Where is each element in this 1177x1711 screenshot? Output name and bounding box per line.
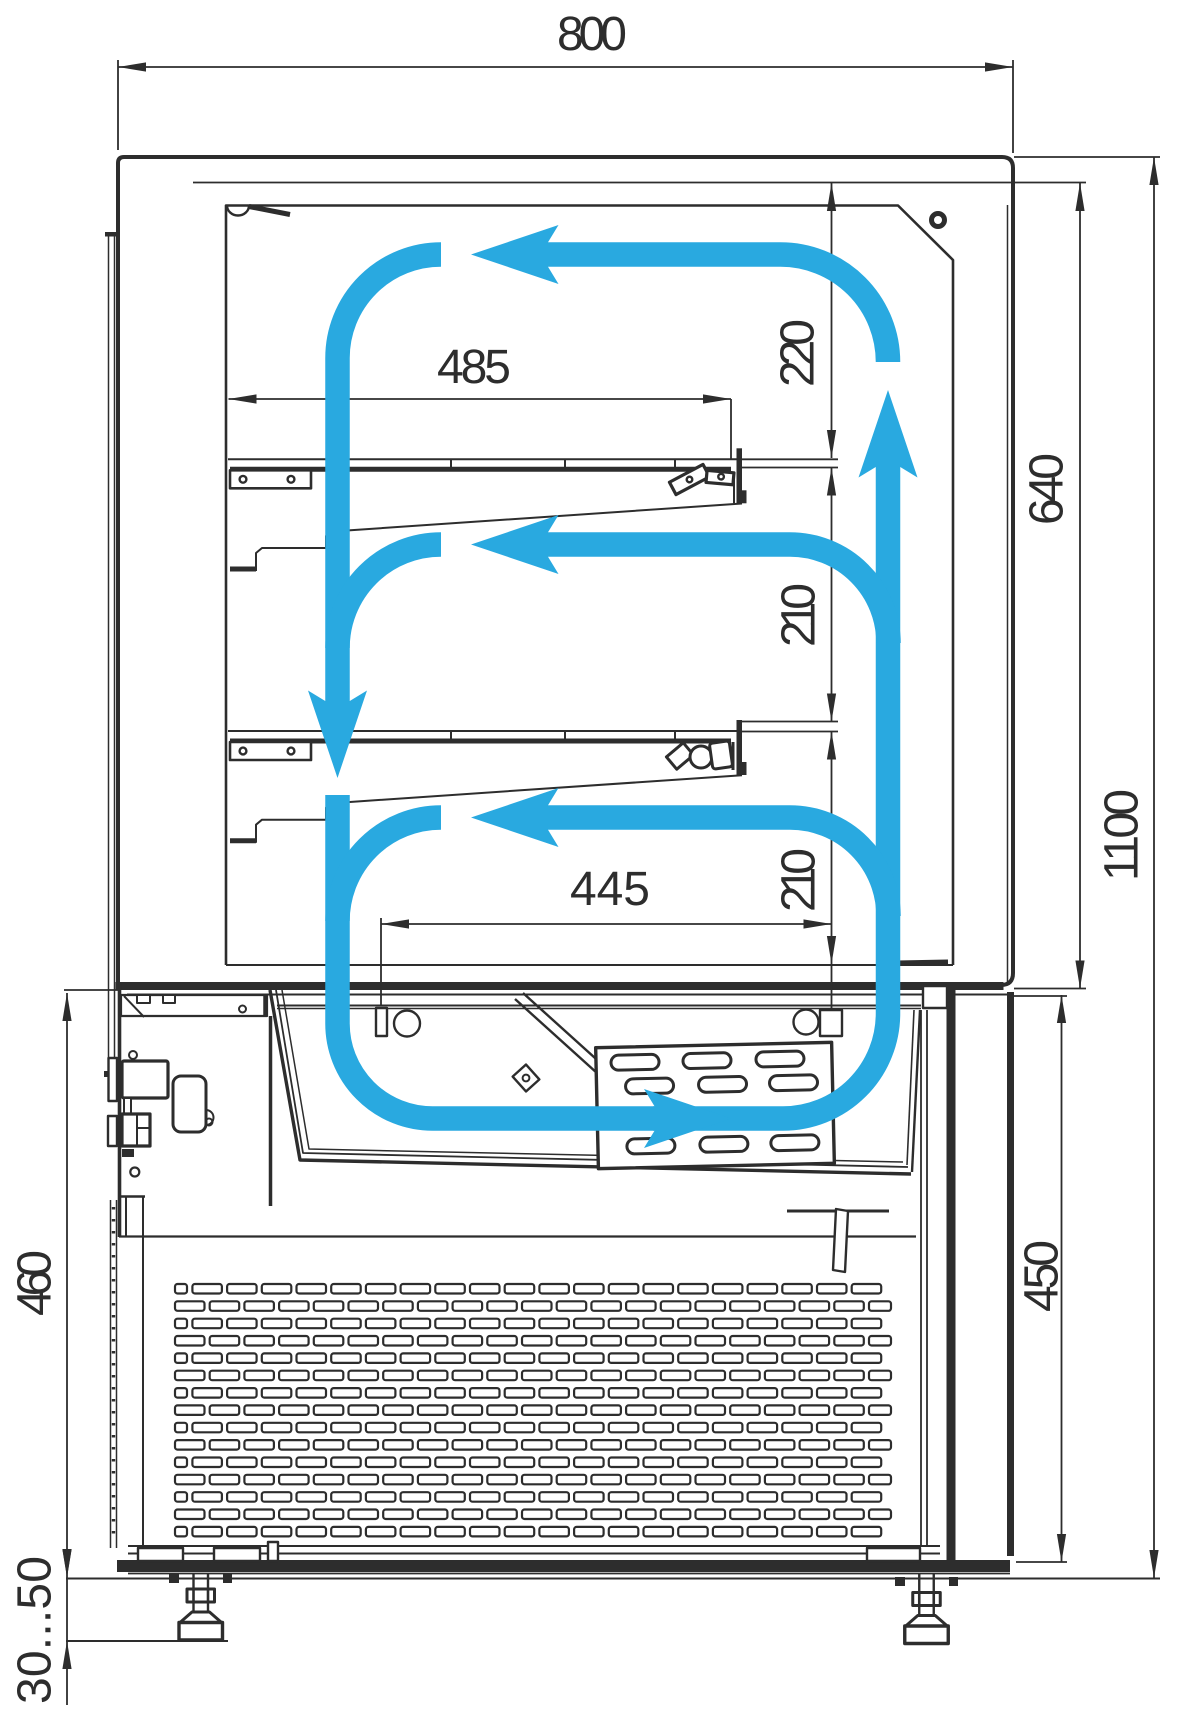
svg-text:220: 220 xyxy=(772,319,825,387)
svg-text:30...50: 30...50 xyxy=(9,1556,62,1704)
svg-text:460: 460 xyxy=(9,1250,62,1316)
svg-text:210: 210 xyxy=(773,848,826,912)
svg-text:450: 450 xyxy=(1016,1240,1069,1312)
svg-text:640: 640 xyxy=(1021,453,1074,525)
svg-text:800: 800 xyxy=(557,8,627,61)
svg-text:1100: 1100 xyxy=(1096,789,1149,881)
svg-text:485: 485 xyxy=(437,341,511,394)
svg-text:445: 445 xyxy=(570,863,650,916)
svg-text:210: 210 xyxy=(773,583,826,647)
